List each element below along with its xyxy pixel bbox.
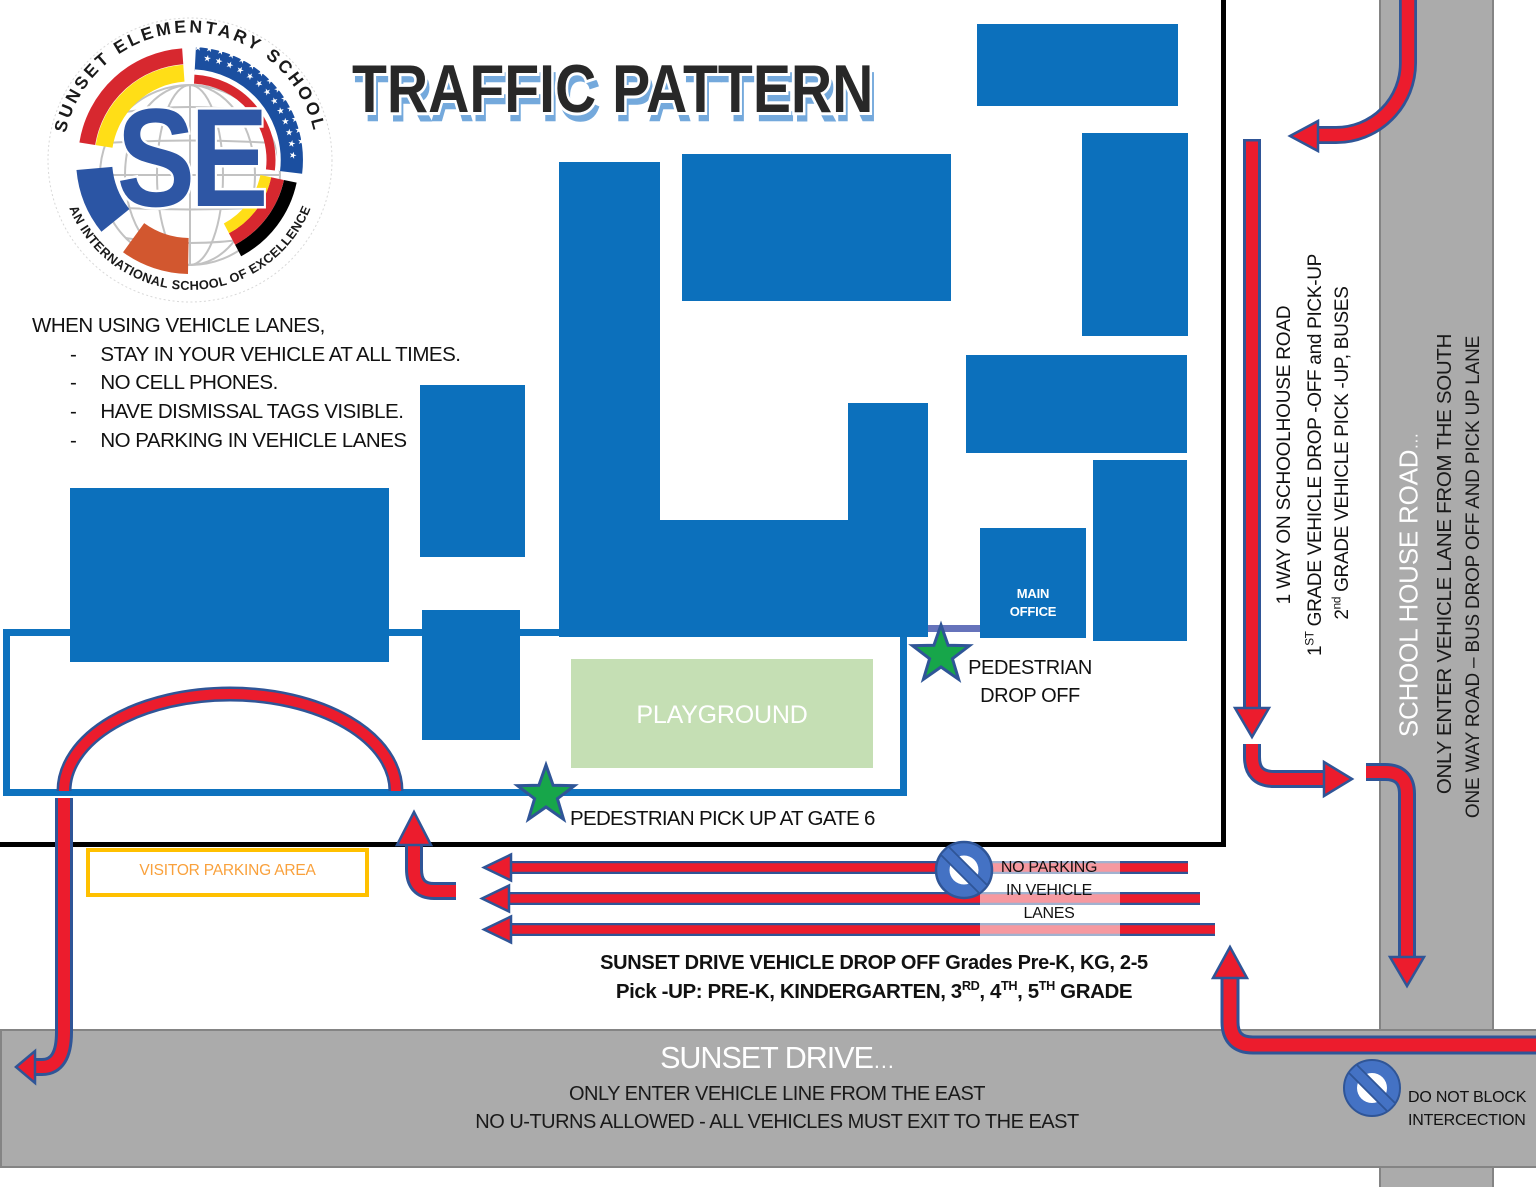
svg-text:SE: SE [117, 80, 265, 236]
